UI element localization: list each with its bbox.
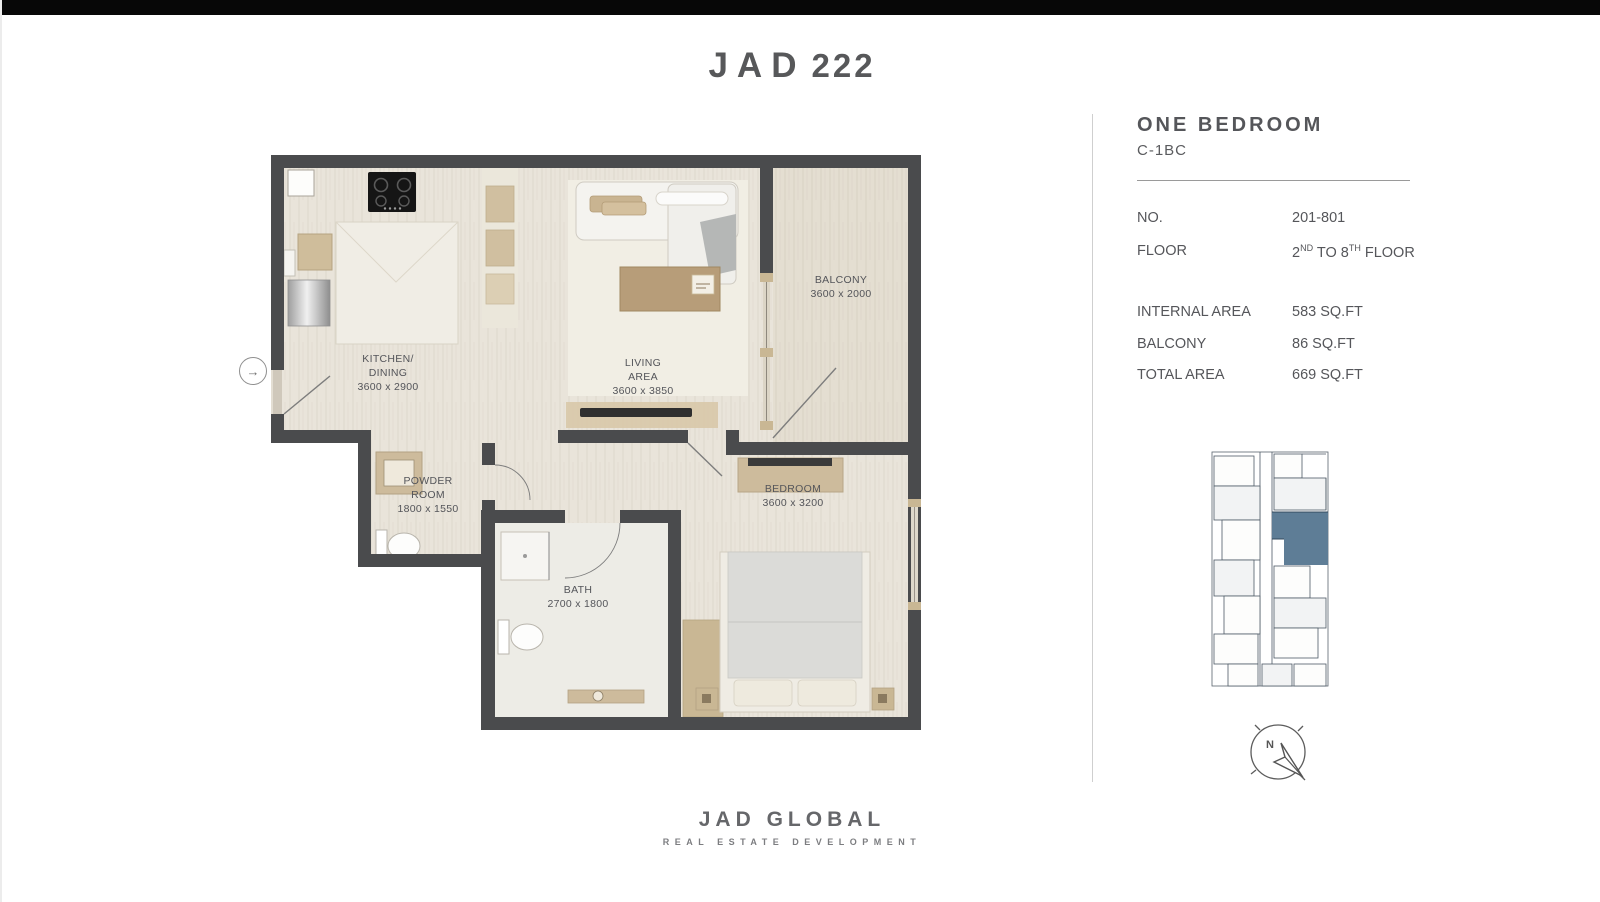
balcony-area-label: BALCONY [1137,336,1206,352]
footer-tagline: REAL ESTATE DEVELOPMENT [642,837,942,847]
cabinet-box [486,274,514,304]
jad-222-logo: JAD222 [642,46,942,86]
balcony-area-row: BALCONY 86 SQ.FT [1137,336,1427,356]
balcony-area-value: 86 SQ.FT [1292,336,1355,352]
unit-number-value: 201-801 [1292,210,1345,226]
entry-arrow-icon: → [239,357,267,385]
sofa-pillow [602,202,646,215]
sofa-bolster [656,192,728,205]
bath-toilet-tank [498,620,509,654]
building-key-plan [1208,448,1332,695]
panel-divider-line [1137,180,1410,181]
cabinet-box [486,186,514,222]
nightstand-lamp [878,694,887,703]
cooktop [368,172,416,212]
bath-sink [593,691,603,701]
internal-area-label: INTERNAL AREA [1137,304,1251,320]
tv-console [580,408,692,417]
total-area-value: 669 SQ.FT [1292,367,1363,383]
cutting-board [298,234,332,270]
logo-number: 222 [811,47,875,84]
cabinet-box [486,230,514,266]
bed-pillow [798,680,856,706]
unit-number-row: NO. 201-801 [1137,210,1427,230]
right-arrow-icon: → [247,364,260,379]
floor-label: FLOOR [1137,243,1187,259]
floor-row: FLOOR 2ND TO 8TH FLOOR [1137,243,1427,263]
unit-type-title: ONE BEDROOM [1137,114,1323,137]
vertical-divider [1092,114,1093,782]
footer-name: JAD GLOBAL [642,808,942,832]
total-area-row: TOTAL AREA 669 SQ.FT [1137,367,1427,387]
kitchen-niche [288,170,314,196]
bedroom-label: BEDROOM 3600 x 3200 [728,482,858,510]
internal-area-row: INTERNAL AREA 583 SQ.FT [1137,304,1427,324]
balcony-label: BALCONY 3600 x 2000 [776,273,906,301]
compass: N [1242,710,1314,799]
total-area-label: TOTAL AREA [1137,367,1225,383]
fridge [288,280,330,326]
kitchen-sink [284,250,295,276]
bed-duvet [728,552,862,678]
unit-code: C-1BC [1137,142,1187,159]
jad-global-logo: JAD GLOBAL REAL ESTATE DEVELOPMENT [642,808,942,847]
north-letter: N [1266,739,1274,751]
living-label: LIVING AREA 3600 x 3850 [578,356,708,398]
bath-toilet [511,624,543,650]
bath-vanity [568,690,644,703]
floor-value: 2ND TO 8TH FLOOR [1292,243,1415,261]
kitchen-label: KITCHEN/ DINING 3600 x 2900 [323,352,453,394]
powder-room-label: POWDER ROOM 1800 x 1550 [363,474,493,516]
entry-opening [273,370,282,414]
floorplan: KITCHEN/ DINING 3600 x 2900 LIVING AREA … [268,152,924,732]
nightstand-lamp [702,694,711,703]
floorplan-drawing [268,152,924,732]
logo-name: JAD [708,46,805,85]
wardrobe-rail [748,458,832,466]
brochure-page: JAD222 ONE BEDROOM C-1BC NO. 201-801 FLO… [0,0,1600,902]
bed-pillow [734,680,792,706]
top-black-bar [2,0,1600,15]
bath-label: BATH 2700 x 1800 [513,583,643,611]
internal-area-value: 583 SQ.FT [1292,304,1363,320]
unit-number-label: NO. [1137,210,1163,226]
